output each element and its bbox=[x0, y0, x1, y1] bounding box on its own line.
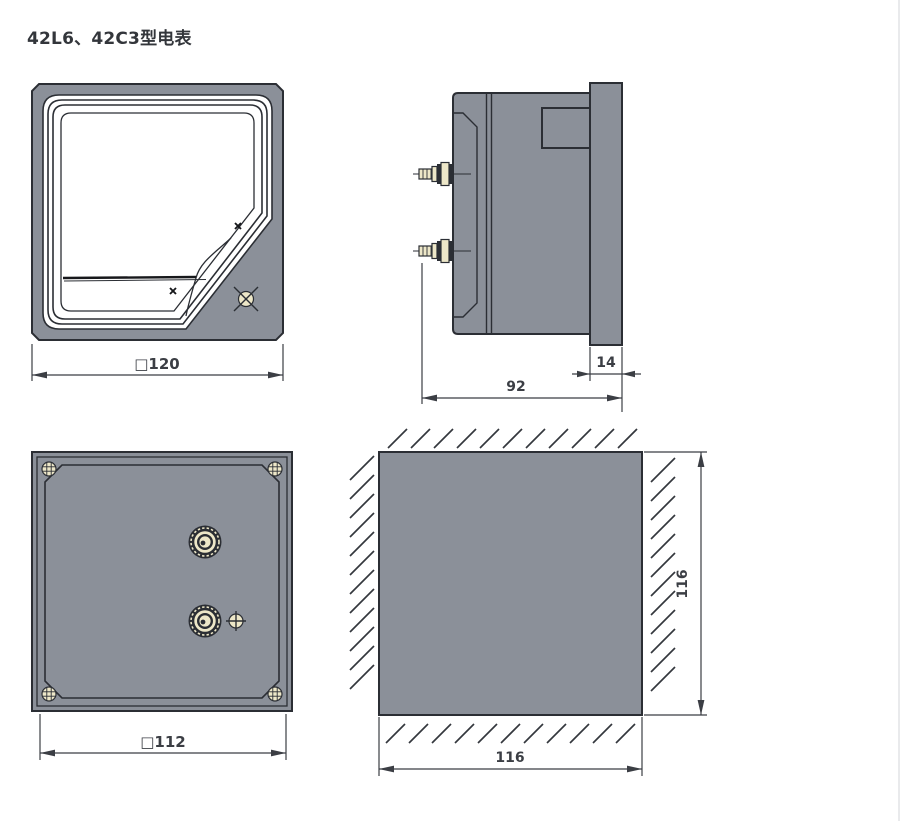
movement-window bbox=[542, 108, 590, 148]
panel-opening bbox=[379, 452, 642, 715]
dimension-label: □120 bbox=[134, 355, 179, 373]
hatch-left bbox=[350, 456, 374, 689]
dimension-label: 116 bbox=[495, 750, 524, 766]
technical-drawing-page: 42L6、42C3型电表 bbox=[0, 0, 900, 821]
pointer-needle bbox=[63, 277, 196, 278]
meter-drawing: □120 bbox=[0, 0, 900, 821]
corner-screw bbox=[268, 462, 282, 476]
dimension-cutout-width: 116 bbox=[379, 750, 642, 772]
corner-screw bbox=[42, 687, 56, 701]
hatch-bottom bbox=[386, 724, 635, 743]
dimension-label: 92 bbox=[506, 379, 525, 395]
cutout-view bbox=[350, 429, 707, 776]
corner-screw bbox=[268, 687, 282, 701]
dimension-back-width: □112 bbox=[40, 714, 286, 760]
back-view bbox=[32, 452, 292, 711]
front-bezel-flange bbox=[590, 83, 622, 345]
dimension-label: 14 bbox=[596, 355, 616, 371]
back-cover bbox=[32, 452, 292, 711]
hatch-right bbox=[651, 458, 675, 691]
terminal-back bbox=[189, 605, 222, 638]
dimension-front-width: □120 bbox=[32, 344, 283, 381]
corner-screw bbox=[42, 462, 56, 476]
dimension-bezel-depth: 14 bbox=[572, 347, 641, 412]
dimension-label: 116 bbox=[675, 569, 691, 598]
hatch-top bbox=[388, 429, 637, 448]
dimension-cutout-height: 116 bbox=[675, 452, 704, 715]
front-view bbox=[32, 84, 283, 340]
side-view bbox=[413, 83, 622, 345]
dimension-label: □112 bbox=[140, 733, 185, 751]
terminal-back bbox=[189, 526, 222, 559]
